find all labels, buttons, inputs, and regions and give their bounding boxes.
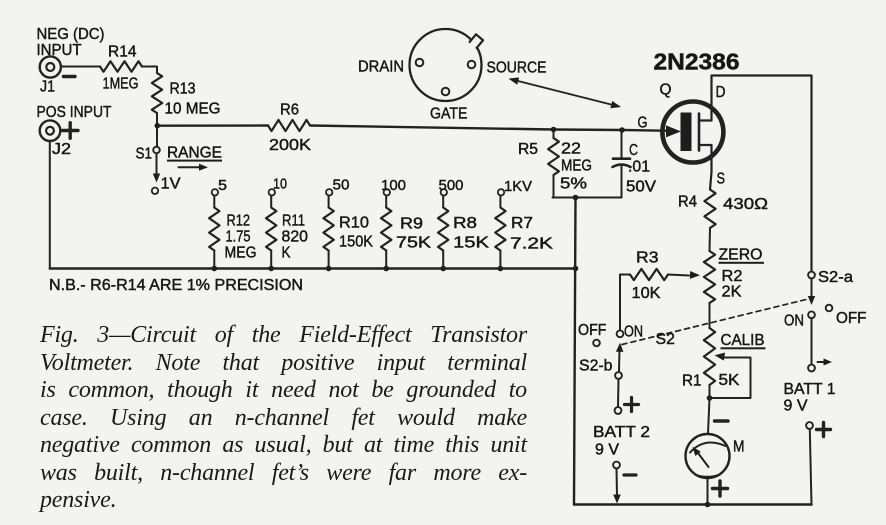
svg-text:9 V: 9 V bbox=[595, 442, 619, 459]
svg-text:INPUT: INPUT bbox=[37, 42, 82, 59]
svg-text:1MEG: 1MEG bbox=[103, 76, 139, 93]
svg-text:15K: 15K bbox=[453, 235, 489, 252]
svg-text:ON: ON bbox=[784, 313, 804, 330]
svg-text:N.B.- R6-R14 ARE 1% PRECISION: N.B.- R6-R14 ARE 1% PRECISION bbox=[49, 277, 303, 294]
svg-text:RANGE: RANGE bbox=[167, 145, 222, 162]
svg-text:2N2386: 2N2386 bbox=[654, 49, 740, 75]
svg-text:R1: R1 bbox=[682, 373, 702, 390]
svg-text:J2: J2 bbox=[52, 141, 71, 158]
svg-text:1.75: 1.75 bbox=[226, 229, 251, 246]
svg-text:MEG: MEG bbox=[225, 245, 257, 262]
svg-text:BATT 2: BATT 2 bbox=[593, 424, 650, 441]
svg-text:22: 22 bbox=[561, 141, 581, 158]
svg-text:BATT 1: BATT 1 bbox=[784, 381, 836, 398]
svg-text:R10: R10 bbox=[339, 215, 369, 232]
svg-text:OFF: OFF bbox=[578, 322, 607, 339]
svg-text:Q: Q bbox=[660, 82, 672, 99]
svg-text:ON: ON bbox=[624, 324, 643, 341]
svg-text:S2-a: S2-a bbox=[818, 269, 853, 286]
svg-text:10K: 10K bbox=[632, 285, 661, 302]
svg-text:1V: 1V bbox=[161, 176, 181, 193]
svg-text:CALIB: CALIB bbox=[721, 332, 765, 349]
svg-text:150K: 150K bbox=[339, 234, 373, 251]
svg-text:S2-b: S2-b bbox=[579, 358, 613, 375]
svg-text:C: C bbox=[629, 142, 638, 159]
svg-text:.01: .01 bbox=[628, 159, 650, 176]
svg-text:OFF: OFF bbox=[836, 310, 867, 327]
svg-text:5K: 5K bbox=[719, 372, 740, 389]
svg-text:K: K bbox=[282, 245, 291, 262]
svg-text:9 V: 9 V bbox=[784, 398, 808, 415]
svg-text:MEG: MEG bbox=[561, 158, 592, 175]
svg-text:50: 50 bbox=[333, 177, 350, 194]
svg-text:S: S bbox=[717, 171, 726, 188]
svg-text:5: 5 bbox=[218, 177, 227, 194]
svg-text:R5: R5 bbox=[518, 141, 538, 158]
svg-text:R11: R11 bbox=[282, 213, 305, 230]
svg-text:1KV: 1KV bbox=[504, 178, 532, 195]
svg-text:POS INPUT: POS INPUT bbox=[37, 104, 112, 121]
svg-text:R13: R13 bbox=[170, 81, 196, 98]
svg-text:200K: 200K bbox=[269, 137, 311, 154]
svg-text:R8: R8 bbox=[453, 215, 477, 232]
svg-text:SOURCE: SOURCE bbox=[487, 60, 547, 77]
svg-text:10: 10 bbox=[273, 176, 287, 193]
svg-text:820: 820 bbox=[282, 229, 309, 246]
svg-text:J1: J1 bbox=[40, 79, 55, 96]
svg-text:S2: S2 bbox=[656, 331, 676, 348]
svg-text:R4: R4 bbox=[678, 194, 697, 211]
svg-text:M: M bbox=[733, 439, 745, 456]
svg-text:2K: 2K bbox=[722, 284, 742, 301]
svg-text:430Ω: 430Ω bbox=[723, 196, 768, 213]
svg-text:50V: 50V bbox=[626, 179, 656, 196]
svg-text:10 MEG: 10 MEG bbox=[165, 101, 221, 118]
svg-text:R2: R2 bbox=[722, 268, 743, 285]
svg-text:75K: 75K bbox=[396, 235, 431, 252]
svg-text:R14: R14 bbox=[108, 44, 137, 61]
svg-text:DRAIN: DRAIN bbox=[358, 59, 404, 76]
svg-text:100: 100 bbox=[381, 177, 406, 194]
svg-text:NEG (DC): NEG (DC) bbox=[37, 26, 105, 43]
svg-text:R12: R12 bbox=[227, 213, 251, 230]
svg-text:7.2K: 7.2K bbox=[510, 236, 553, 253]
svg-text:S1: S1 bbox=[136, 146, 153, 163]
svg-text:D: D bbox=[716, 84, 726, 101]
svg-text:R7: R7 bbox=[511, 215, 533, 232]
svg-text:R9: R9 bbox=[400, 216, 423, 233]
svg-text:R6: R6 bbox=[280, 102, 299, 119]
svg-text:R3: R3 bbox=[636, 250, 659, 267]
svg-text:ZERO: ZERO bbox=[719, 247, 763, 264]
svg-text:GATE: GATE bbox=[430, 106, 468, 123]
svg-text:G: G bbox=[638, 115, 648, 132]
svg-text:5%: 5% bbox=[560, 176, 587, 193]
svg-text:500: 500 bbox=[439, 177, 464, 194]
